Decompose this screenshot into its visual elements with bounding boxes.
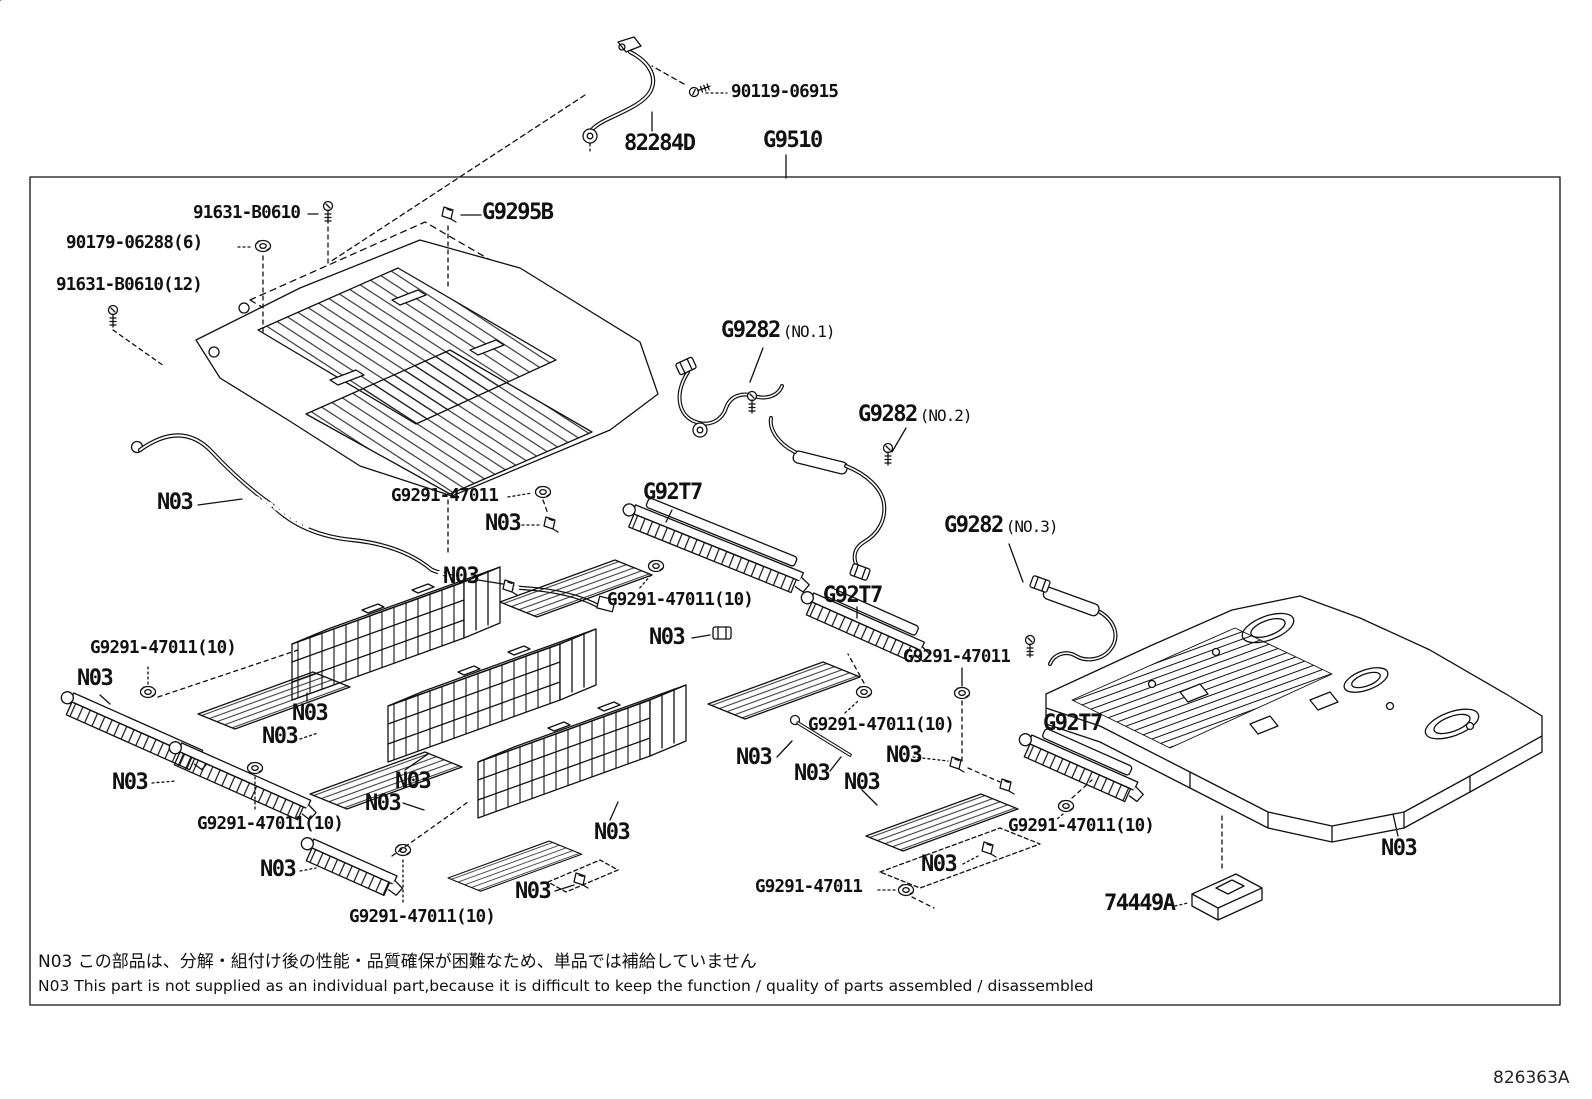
part-label: N03 <box>292 703 327 725</box>
battery-carrier-tray <box>1046 596 1542 842</box>
part-label: N03 <box>844 772 879 794</box>
part-label: G9291-47011(10) <box>90 640 236 658</box>
part-label: G9291-47011 <box>391 488 498 506</box>
part-label-suffix: (NO.1) <box>783 324 835 340</box>
spacer-74449a <box>1175 814 1262 920</box>
g9282-harness-no3 <box>1009 544 1115 664</box>
part-label: G9295B <box>482 202 552 224</box>
part-label: N03 <box>515 881 550 903</box>
g92t7-busbars <box>618 490 1152 807</box>
part-label: N03 <box>443 566 478 588</box>
part-label: 91631-B0610 <box>193 205 300 223</box>
part-label: N03 <box>886 745 921 767</box>
part-label: N03 <box>594 822 629 844</box>
part-label: G9282(NO.1) <box>721 320 835 342</box>
part-label: G9291-47011(10) <box>349 909 495 927</box>
battery-cover-drawing <box>196 95 658 552</box>
part-label: N03 <box>395 771 430 793</box>
part-label: G9282(NO.2) <box>858 404 972 426</box>
part-label: G92T7 <box>823 585 882 607</box>
part-label: 74449A <box>1104 893 1174 915</box>
part-label: N03 <box>262 726 297 748</box>
part-label: G92T7 <box>643 482 702 504</box>
g9282-harness-no1 <box>675 348 782 437</box>
part-label: G9291-47011(10) <box>1008 818 1154 836</box>
part-label: N03 <box>485 513 520 535</box>
part-label: G92T7 <box>1043 713 1102 735</box>
part-label: 90179-06288(6) <box>66 235 202 253</box>
part-label: N03 <box>157 492 192 514</box>
part-label: 90119-06915 <box>731 84 838 102</box>
part-label: G9510 <box>763 130 822 152</box>
part-label: G9282(NO.3) <box>944 515 1058 537</box>
bolt-90119-06915 <box>652 66 727 98</box>
part-label: N03 <box>1381 838 1416 860</box>
part-label-suffix: (NO.2) <box>920 408 972 424</box>
part-label: N03 <box>649 627 684 649</box>
sheet-number: 826363A <box>1493 1068 1570 1088</box>
part-label-suffix: (NO.3) <box>1006 519 1058 535</box>
part-label: G9291-47011(10) <box>197 816 343 834</box>
parts-diagram-page: 90119-0691582284DG951091631-B061090179-0… <box>0 0 1592 1099</box>
part-label: G9291-47011 <box>903 649 1010 667</box>
diagram-art <box>0 0 1592 1099</box>
part-label: G9291-47011 <box>755 879 862 897</box>
note-japanese: N03 この部品は、分解・組付け後の性能・品質確保が困難なため、単品では補給して… <box>38 952 757 972</box>
part-label: G9291-47011(10) <box>808 717 954 735</box>
part-label: 91631-B0610(12) <box>56 277 202 295</box>
part-label: G9291-47011(10) <box>607 592 753 610</box>
part-label: 82284D <box>624 133 694 155</box>
part-label: N03 <box>921 854 956 876</box>
part-label: N03 <box>77 668 112 690</box>
part-label: N03 <box>736 747 771 769</box>
part-label: N03 <box>794 763 829 785</box>
part-label: N03 <box>365 793 400 815</box>
part-label: N03 <box>260 859 295 881</box>
part-label: N03 <box>112 772 147 794</box>
note-english: N03 This part is not supplied as an indi… <box>38 977 1093 996</box>
